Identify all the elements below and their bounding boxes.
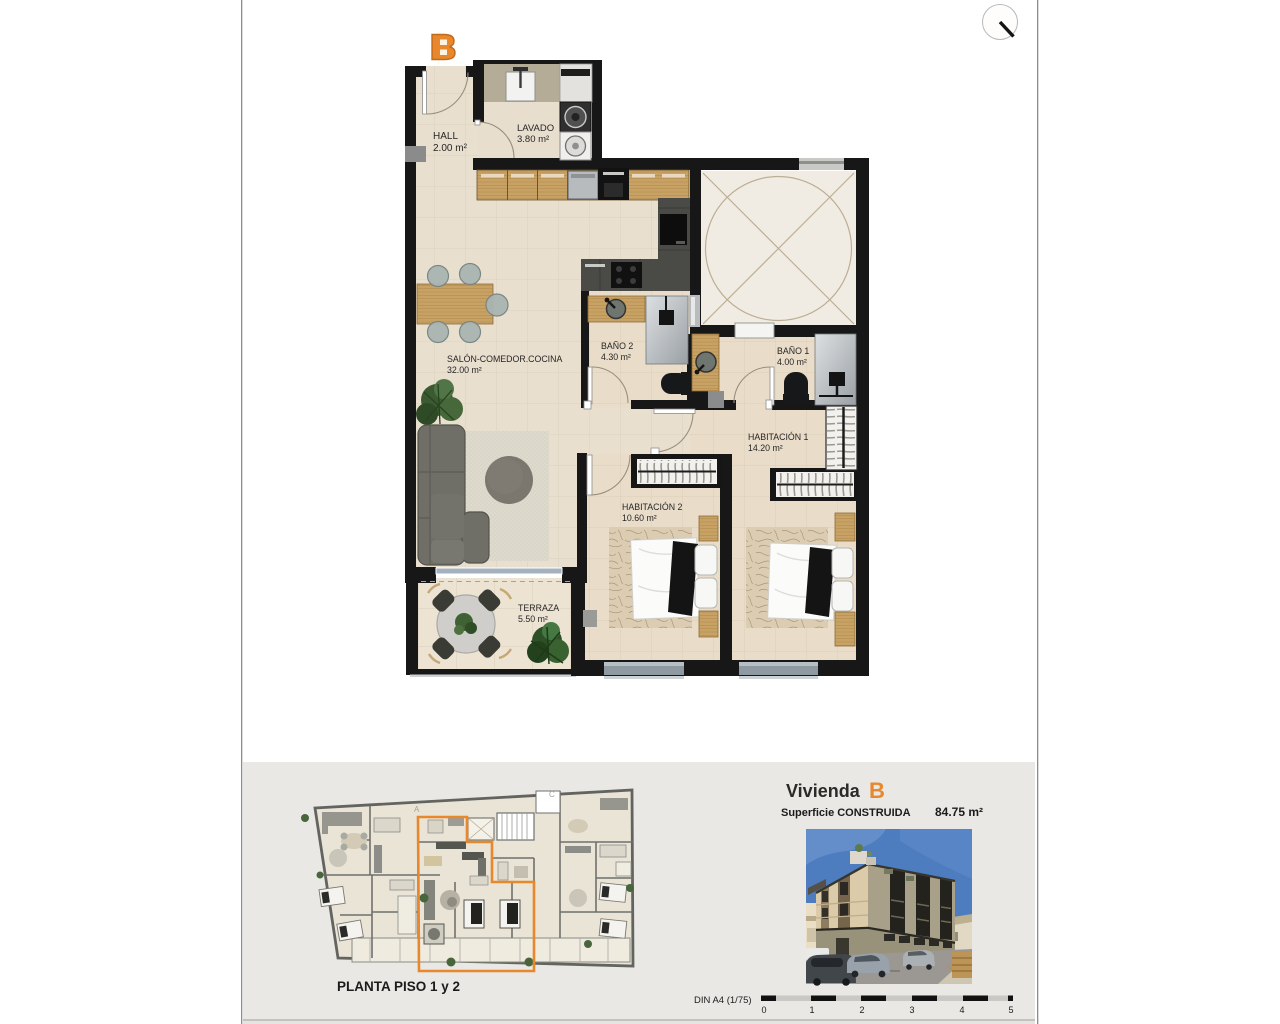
svg-text:10.60 m²: 10.60 m² [622,513,657,523]
svg-text:3.80 m²: 3.80 m² [517,134,549,145]
svg-text:B: B [869,778,885,803]
svg-text:A: A [414,805,420,814]
svg-text:BAÑO 1: BAÑO 1 [777,346,809,356]
svg-text:0: 0 [761,1005,766,1015]
svg-text:DIN A4 (1/75): DIN A4 (1/75) [694,995,752,1006]
svg-text:84.75 m²: 84.75 m² [935,805,983,819]
svg-text:5: 5 [1008,1005,1013,1015]
svg-text:SALÓN-COMEDOR.COCINA: SALÓN-COMEDOR.COCINA [447,354,562,364]
svg-text:HABITACIÓN 1: HABITACIÓN 1 [748,432,809,442]
svg-text:2.00 m²: 2.00 m² [433,143,468,154]
svg-text:4.30 m²: 4.30 m² [601,352,631,362]
svg-text:4.00 m²: 4.00 m² [777,357,807,367]
svg-text:2: 2 [859,1005,864,1015]
svg-text:PLANTA PISO 1 y 2: PLANTA PISO 1 y 2 [337,979,460,994]
svg-text:14.20 m²: 14.20 m² [748,443,783,453]
svg-text:32.00 m²: 32.00 m² [447,365,482,375]
svg-text:HALL: HALL [433,131,458,142]
svg-text:4: 4 [959,1005,964,1015]
svg-text:HABITACIÓN 2: HABITACIÓN 2 [622,502,683,512]
svg-text:TERRAZA: TERRAZA [518,603,559,613]
svg-text:5.50 m²: 5.50 m² [518,614,548,624]
svg-text:LAVADO: LAVADO [517,123,554,134]
svg-text:Vivienda: Vivienda [786,781,861,801]
svg-text:1: 1 [809,1005,814,1015]
svg-text:C: C [549,790,555,799]
svg-text:3: 3 [909,1005,914,1015]
svg-text:BAÑO 2: BAÑO 2 [601,341,633,351]
svg-text:Superficie CONSTRUIDA: Superficie CONSTRUIDA [781,807,911,819]
